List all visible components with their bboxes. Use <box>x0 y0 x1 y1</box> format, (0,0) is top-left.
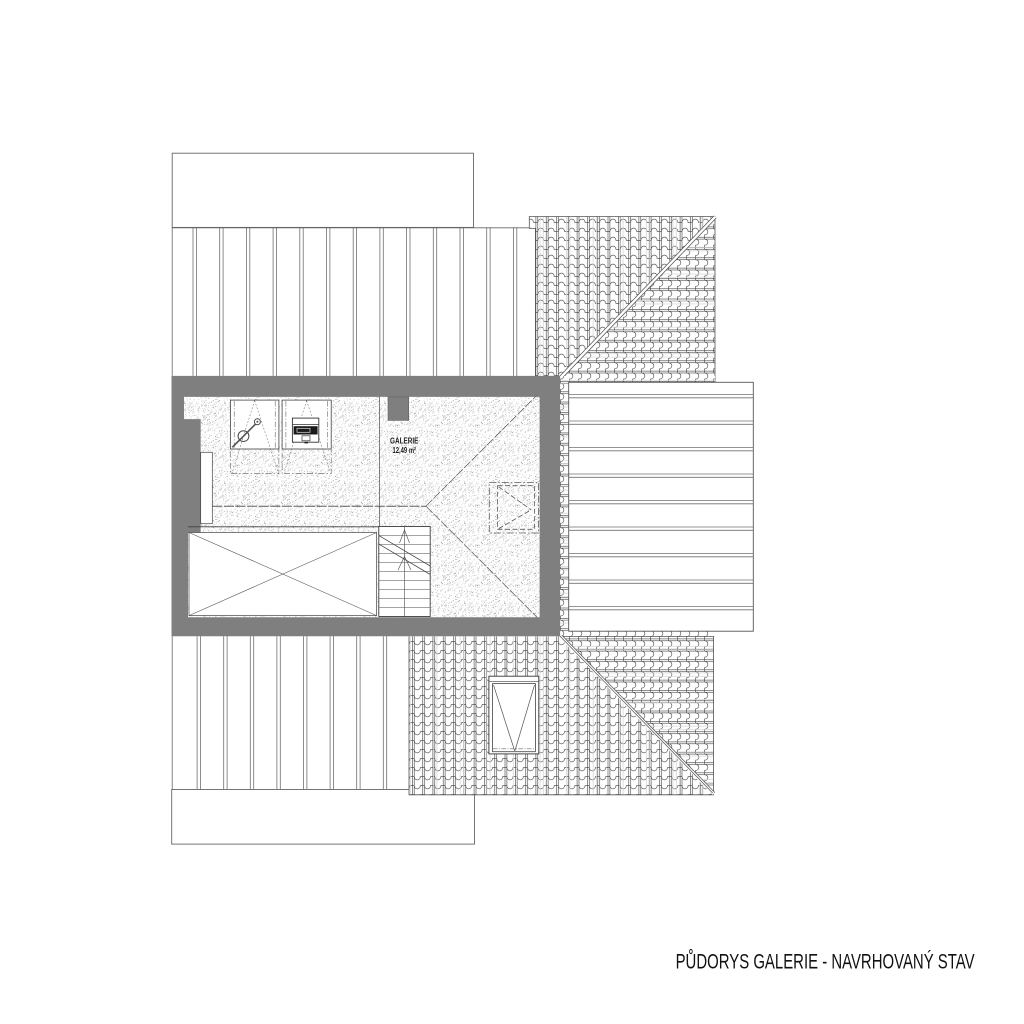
svg-text:PŮDORYS GALERIE - NAVRHOVANÝ S: PŮDORYS GALERIE - NAVRHOVANÝ STAV <box>676 950 975 974</box>
svg-text:12,49 m²: 12,49 m² <box>393 446 417 455</box>
svg-text:GALERIE: GALERIE <box>390 436 419 446</box>
